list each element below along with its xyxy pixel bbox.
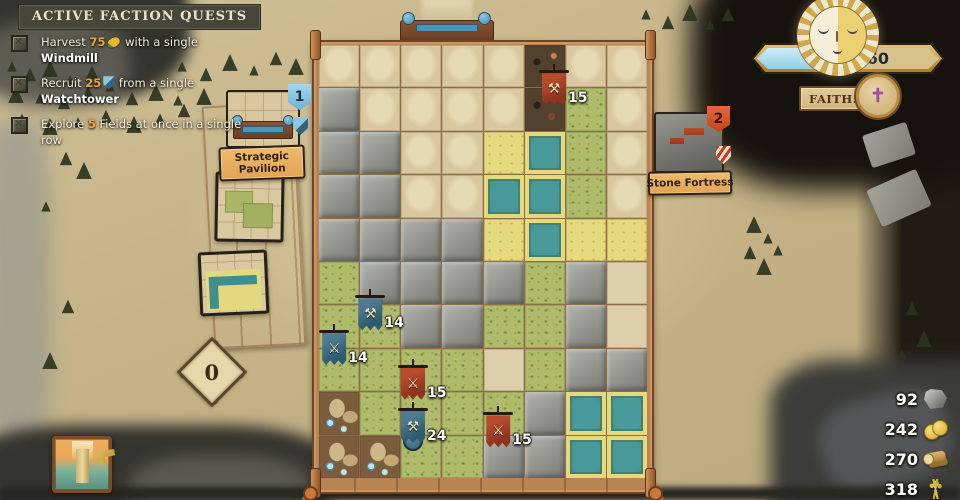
quest-checkbox[interactable] xyxy=(11,76,28,93)
stone-fortress-label: Stone Fortress xyxy=(648,170,732,195)
axe-banner-icon: ⚒ xyxy=(401,411,425,443)
resource-row: 270 xyxy=(817,448,947,470)
swords-banner-icon: ⚔ xyxy=(322,333,346,365)
resource-row: 318 xyxy=(817,478,947,500)
faith-label: FAITH: xyxy=(809,92,857,106)
red-army-banner[interactable]: ⚒15 xyxy=(542,75,566,109)
game-screen: ⚒15⚒14⚔14⚔15⚒24⚔15 ACTIVE FACTION QUESTS… xyxy=(0,0,960,500)
quest-checkbox[interactable] xyxy=(11,35,28,52)
quest-list: Harvest 75 with a single WindmillRecruit… xyxy=(11,34,243,158)
pavilion-dome-icon xyxy=(283,115,294,126)
resource-value: 242 xyxy=(885,420,918,439)
pavilion-dome-icon xyxy=(402,12,415,25)
corn-icon xyxy=(106,35,122,49)
resource-value: 318 xyxy=(885,480,918,499)
army-strength-value: 24 xyxy=(427,428,446,444)
resource-value: 270 xyxy=(885,450,918,469)
blue-army-banner[interactable]: ⚒14 xyxy=(358,300,382,334)
army-strength-value: 15 xyxy=(512,432,531,448)
wood-icon xyxy=(922,447,948,471)
frame-flourish xyxy=(303,486,318,500)
cliff-left xyxy=(0,120,52,450)
counter-badge: 0 xyxy=(180,340,244,404)
quest-item: Explore 5 Fields at once in a single row xyxy=(11,116,243,148)
sun-face xyxy=(809,6,867,64)
red-army-banner[interactable]: ⚔15 xyxy=(401,370,425,404)
quest-text: Explore 5 Fields at once in a single row xyxy=(41,116,243,148)
resource-value: 92 xyxy=(896,390,918,409)
blue-army-banner[interactable]: ⚔14 xyxy=(322,335,346,369)
pavilion-pool-image xyxy=(242,126,284,133)
stone-icon xyxy=(924,389,947,409)
quest-checkbox[interactable] xyxy=(11,117,28,134)
event-card-thumbnail[interactable] xyxy=(52,436,112,493)
axe-banner-icon: ⚒ xyxy=(358,298,382,330)
quest-text: Harvest 75 with a single Windmill xyxy=(41,34,243,66)
sword-banner-icon: ⚔ xyxy=(486,415,510,447)
army-strength-value: 14 xyxy=(348,350,367,366)
army-strength-value: 15 xyxy=(568,90,587,106)
quest-item: Recruit 25 from a single Watchtower xyxy=(11,75,243,107)
quest-text: Recruit 25 from a single Watchtower xyxy=(41,75,243,107)
blue-army-banner[interactable]: ⚒24 xyxy=(401,413,425,447)
faith-badge[interactable]: ✝ xyxy=(856,74,900,118)
wheat-icon xyxy=(924,479,947,499)
red-army-banner[interactable]: ⚔15 xyxy=(486,417,510,451)
pavilion-dome-icon xyxy=(478,12,491,25)
frame-flourish xyxy=(648,486,663,500)
map-pattern-preview[interactable] xyxy=(214,171,284,242)
coins-icon xyxy=(924,419,947,439)
ankh-icon: ✝ xyxy=(870,85,886,107)
resource-row: 242 xyxy=(817,418,947,440)
pavilion-pool xyxy=(416,24,478,32)
army-strength-value: 15 xyxy=(427,385,446,401)
resource-panel: 92242270318 xyxy=(817,388,947,500)
shield-blue-icon xyxy=(103,76,114,89)
army-strength-value: 14 xyxy=(384,315,403,331)
counter-value: 0 xyxy=(205,360,220,385)
sword-banner-icon: ⚔ xyxy=(401,368,425,400)
quest-item: Harvest 75 with a single Windmill xyxy=(11,34,243,66)
quest-panel-title: ACTIVE FACTION QUESTS xyxy=(18,4,261,30)
sun-deity-icon[interactable] xyxy=(797,0,879,76)
axe-banner-icon: ⚒ xyxy=(542,73,566,105)
card-tower-image xyxy=(76,449,89,483)
map-pattern-preview[interactable] xyxy=(198,250,270,317)
resource-row: 92 xyxy=(817,388,947,410)
army-banners-layer: ⚒15⚒14⚔14⚔15⚒24⚔15 xyxy=(319,45,647,478)
game-board: ⚒15⚒14⚔14⚔15⚒24⚔15 xyxy=(312,40,654,494)
